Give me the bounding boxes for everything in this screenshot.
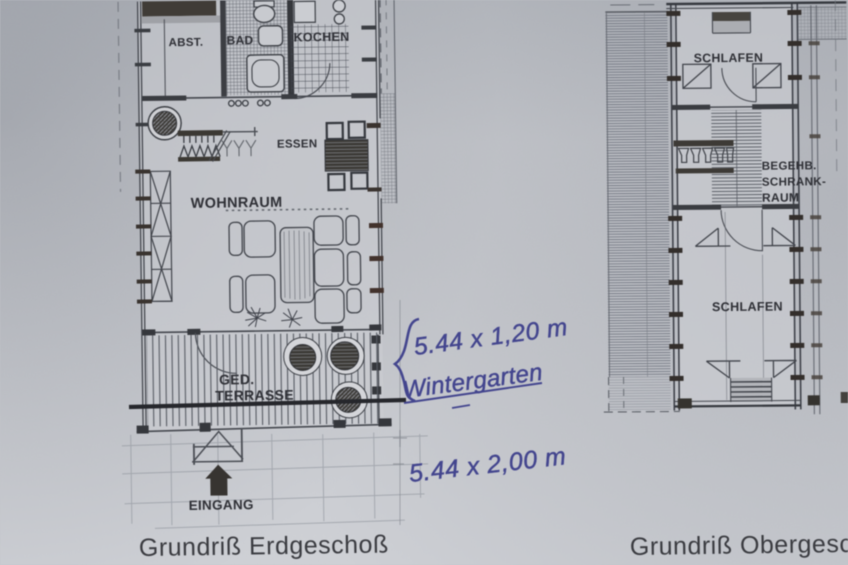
svg-text:RAUM: RAUM: [762, 190, 799, 204]
svg-text:KOCHEN: KOCHEN: [293, 30, 349, 45]
svg-text:Grundriß Obergescho: Grundriß Obergescho: [630, 529, 848, 561]
svg-text:SCHLAFEN: SCHLAFEN: [712, 300, 783, 315]
svg-text:ESSEN: ESSEN: [277, 138, 318, 151]
svg-text:SCHRANK-: SCHRANK-: [762, 175, 826, 189]
svg-text:EINGANG: EINGANG: [189, 497, 254, 513]
svg-text:BEGEHB.: BEGEHB.: [762, 159, 817, 172]
svg-text:Grundriß Erdgeschoß: Grundriß Erdgeschoß: [139, 531, 389, 562]
svg-text:SCHLAFEN: SCHLAFEN: [694, 51, 763, 66]
svg-text:ABST.: ABST.: [169, 37, 204, 49]
svg-text:BAD: BAD: [226, 33, 253, 47]
svg-text:GED.: GED.: [219, 371, 255, 387]
